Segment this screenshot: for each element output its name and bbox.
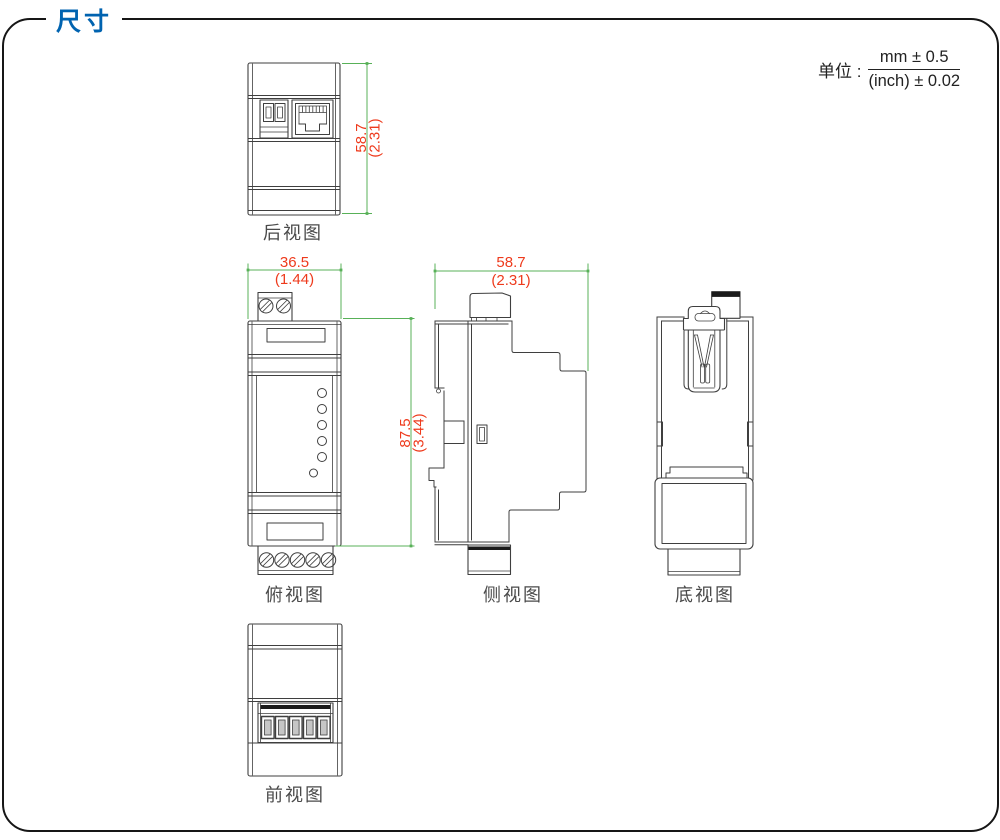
rear-height-inch: (2.31) [367,118,384,157]
bottom-terminal-block [668,549,740,575]
front-view-label: 前视图 [265,785,325,805]
front-view: 前视图 [248,624,342,805]
rear-height-dimension: 58.7 (2.31) [342,62,384,215]
front-terminal-5way [258,703,333,743]
side-top-terminal [470,293,511,321]
drawing-canvas: 58.7 (2.31) 后视图 [0,0,1000,840]
side-right-profile [509,321,586,542]
top-height-dimension: 87.5 (3.44) [335,317,428,547]
top-terminal-2screw [258,293,292,322]
side-width-mm: 58.7 [496,254,525,271]
top-width-inch: (1.44) [275,271,314,288]
bottom-lip [666,467,747,478]
bottom-view-label: 底视图 [675,585,735,605]
rear-view: 58.7 (2.31) 后视图 [248,62,384,243]
side-left-profile [429,321,464,542]
top-width-mm: 36.5 [280,254,309,271]
side-view: 58.7 (2.31) [429,254,589,605]
side-width-inch: (2.31) [491,272,530,289]
bottom-view: 底视图 [655,292,753,605]
top-view: 36.5 (1.44) 87.5 (3.44) 俯视图 [247,254,428,605]
side-view-label: 侧视图 [483,585,543,605]
side-bottom-terminal [468,545,511,575]
rj45-port [292,100,333,138]
side-width-dimension: 58.7 (2.31) [434,254,590,371]
top-terminal-5screw [258,546,336,575]
top-view-label: 俯视图 [265,585,325,605]
dimensions-page: 尺寸 单位 : mm ± 0.5 (inch) ± 0.02 [0,0,1000,840]
bottom-face [655,478,753,549]
top-height-inch: (3.44) [411,413,428,452]
terminal-2pin [260,100,288,138]
front-body [248,624,342,776]
din-rail-clip [684,307,725,393]
rear-view-label: 后视图 [263,223,323,243]
